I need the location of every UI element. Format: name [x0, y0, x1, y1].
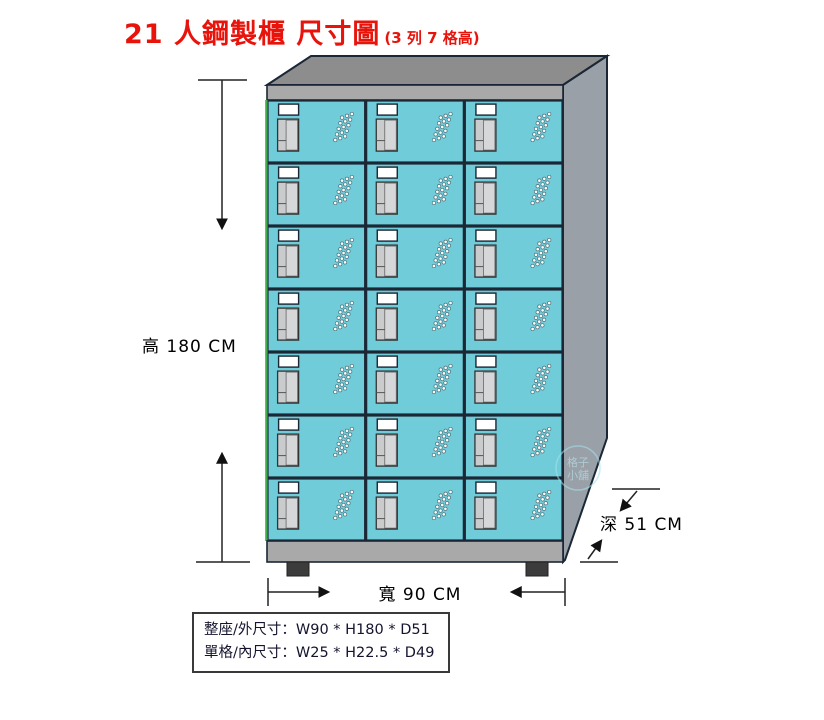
locker-cell: [367, 354, 462, 414]
locker-cell: [466, 165, 561, 225]
height-dimension-label: 高 180 CM: [142, 332, 237, 357]
height-dimension: [196, 80, 250, 562]
locker-handle-grip: [483, 183, 495, 213]
cabinet-side-face: [563, 56, 607, 562]
cabinet-left-edge-accent: [265, 100, 267, 541]
cabinet-foot-left: [287, 562, 309, 576]
locker-handle-grip: [385, 246, 397, 276]
locker-name-plate: [476, 230, 496, 241]
locker-name-plate: [377, 167, 397, 178]
locker-cell: [269, 480, 364, 540]
locker-handle-grip: [286, 120, 298, 150]
locker-name-plate: [377, 104, 397, 115]
locker-name-plate: [377, 230, 397, 241]
locker-name-plate: [476, 419, 496, 430]
locker-handle-grip: [286, 309, 298, 339]
locker-handle-grip: [483, 246, 495, 276]
locker-cell: [367, 165, 462, 225]
locker-cell: [269, 354, 364, 414]
locker-name-plate: [377, 356, 397, 367]
locker-cell: [466, 417, 561, 477]
locker-cells: [269, 102, 562, 540]
depth-dim-lower-arrow: [588, 541, 601, 559]
locker-cell: [466, 354, 561, 414]
locker-handle-grip: [286, 246, 298, 276]
locker-cell: [466, 102, 561, 162]
locker-name-plate: [279, 104, 299, 115]
depth-dim-upper-arrow: [621, 491, 637, 510]
locker-name-plate: [279, 230, 299, 241]
locker-handle-grip: [286, 372, 298, 402]
locker-name-plate: [377, 293, 397, 304]
locker-handle-grip: [483, 498, 495, 528]
locker-cell: [367, 102, 462, 162]
locker-handle-grip: [483, 435, 495, 465]
cabinet-foot-right: [526, 562, 548, 576]
cabinet-top-face: [267, 56, 607, 85]
locker-cell: [367, 228, 462, 288]
locker-name-plate: [476, 104, 496, 115]
locker-cell: [269, 102, 364, 162]
depth-dimension-label: 深 51 CM: [600, 510, 683, 535]
locker-handle-grip: [483, 309, 495, 339]
locker-cell: [466, 480, 561, 540]
locker-cell: [269, 417, 364, 477]
locker-handle-grip: [286, 435, 298, 465]
locker-handle-grip: [385, 309, 397, 339]
watermark-text-2: 小舖: [567, 468, 589, 482]
locker-handle-grip: [385, 120, 397, 150]
locker-cell: [367, 480, 462, 540]
locker-name-plate: [279, 482, 299, 493]
spec-inner-size: 單格/內尺寸：W25 * H22.5 * D49: [204, 642, 438, 665]
locker-name-plate: [377, 419, 397, 430]
cabinet-base-rail: [267, 541, 563, 562]
locker-handle-grip: [286, 183, 298, 213]
locker-handle-grip: [385, 183, 397, 213]
locker-name-plate: [476, 356, 496, 367]
locker-name-plate: [279, 356, 299, 367]
locker-handle-grip: [385, 435, 397, 465]
locker-cell: [269, 291, 364, 351]
spec-outer-size: 整座/外尺寸：W90 * H180 * D51: [204, 619, 438, 642]
cabinet-header-rail: [267, 85, 563, 100]
locker-name-plate: [476, 293, 496, 304]
locker-handle-grip: [385, 372, 397, 402]
locker-cell: [367, 291, 462, 351]
locker-name-plate: [476, 167, 496, 178]
locker-name-plate: [279, 293, 299, 304]
locker-cell: [466, 228, 561, 288]
locker-handle-grip: [483, 120, 495, 150]
locker-cell: [269, 228, 364, 288]
locker-name-plate: [279, 419, 299, 430]
locker-cell: [367, 417, 462, 477]
locker-dimension-diagram: 21 人鋼製櫃 尺寸圖 (3 列 7 格高) 格子 小舖: [0, 0, 824, 720]
watermark-text-1: 格子: [567, 455, 589, 469]
locker-name-plate: [476, 482, 496, 493]
locker-handle-grip: [483, 372, 495, 402]
spec-box: 整座/外尺寸：W90 * H180 * D51 單格/內尺寸：W25 * H22…: [192, 612, 450, 673]
locker-name-plate: [377, 482, 397, 493]
locker-cell: [269, 165, 364, 225]
locker-cell: [466, 291, 561, 351]
locker-handle-grip: [286, 498, 298, 528]
locker-handle-grip: [385, 498, 397, 528]
width-dimension-label: 寬 90 CM: [330, 580, 510, 605]
locker-name-plate: [279, 167, 299, 178]
